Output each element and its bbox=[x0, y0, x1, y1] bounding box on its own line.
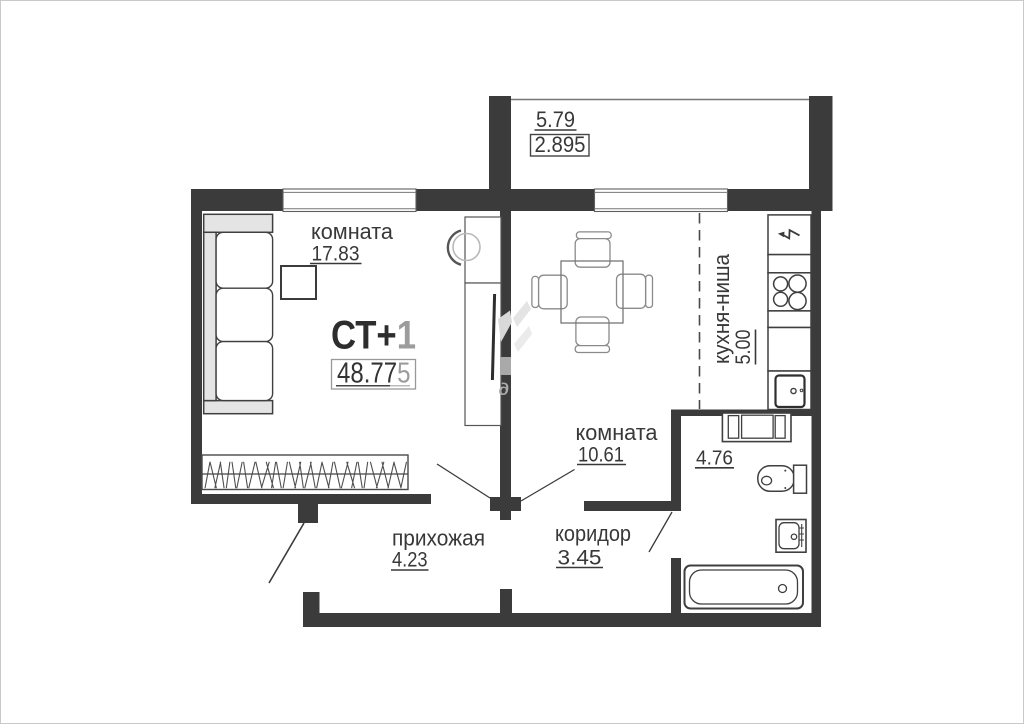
svg-text:5.79: 5.79 bbox=[536, 107, 575, 132]
svg-text:10.61: 10.61 bbox=[578, 444, 624, 467]
svg-text:4.23: 4.23 bbox=[392, 549, 428, 572]
svg-text:кухня-ниша: кухня-ниша bbox=[709, 254, 734, 364]
svg-text:д: д bbox=[499, 380, 510, 399]
svg-text:4.76: 4.76 bbox=[696, 448, 733, 470]
svg-text:3.45: 3.45 bbox=[558, 547, 602, 570]
svg-text:17.83: 17.83 bbox=[312, 243, 360, 266]
svg-text:коридор: коридор bbox=[555, 521, 631, 546]
svg-text:комната: комната bbox=[311, 219, 393, 244]
svg-text:СТ+1: СТ+1 bbox=[331, 314, 416, 358]
svg-text:2.895: 2.895 bbox=[535, 132, 586, 157]
svg-text:5.00: 5.00 bbox=[732, 330, 755, 365]
svg-text:прихожая: прихожая bbox=[392, 526, 485, 551]
svg-text:48.775: 48.775 bbox=[337, 358, 411, 390]
svg-text:комната: комната bbox=[576, 420, 658, 445]
